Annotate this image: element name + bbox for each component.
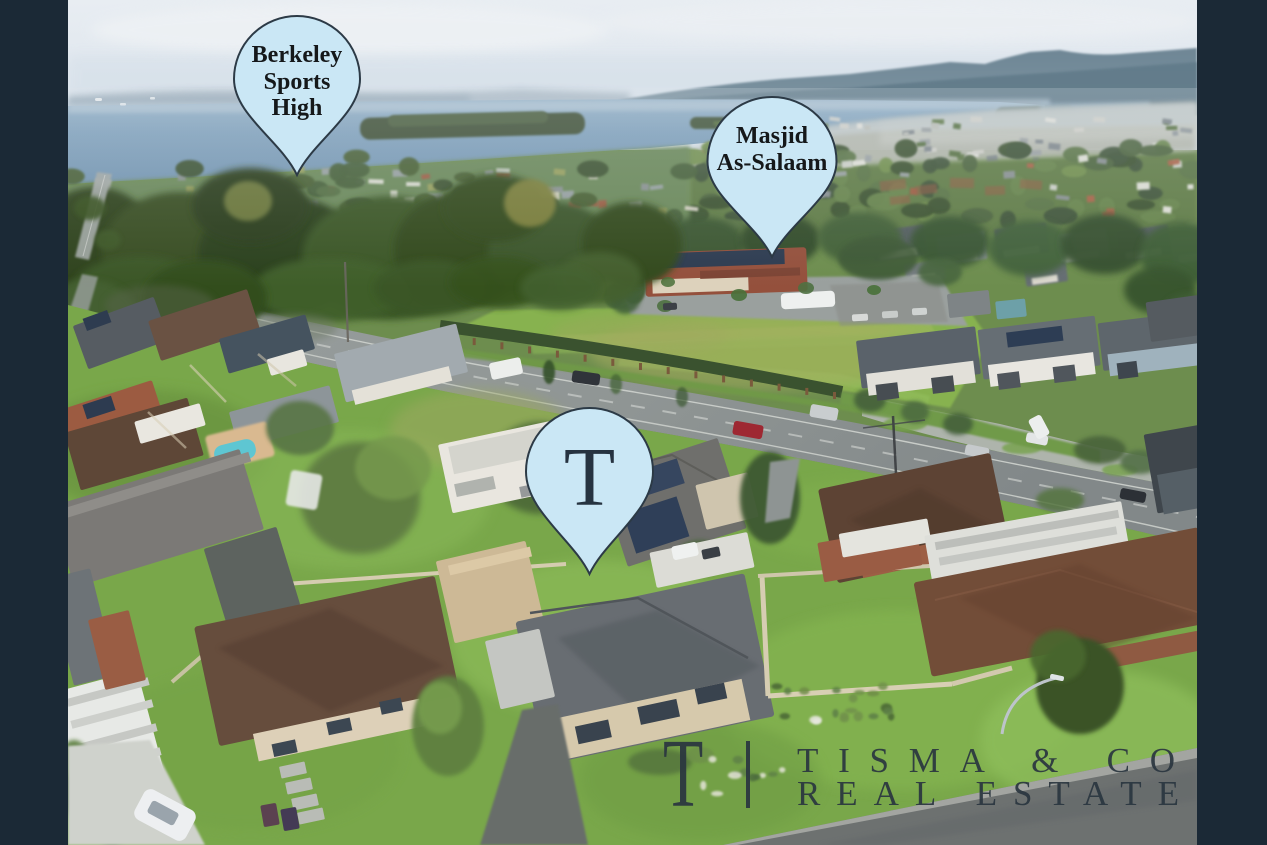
svg-text:REAL ESTATE: REAL ESTATE [797, 774, 1179, 813]
svg-text:Sports: Sports [264, 69, 331, 95]
svg-text:T: T [564, 431, 615, 524]
svg-text:Masjid: Masjid [736, 123, 809, 149]
svg-text:T: T [663, 719, 703, 827]
svg-text:As-Salaam: As-Salaam [717, 150, 828, 176]
svg-text:Berkeley: Berkeley [252, 42, 343, 68]
svg-text:High: High [272, 95, 323, 121]
